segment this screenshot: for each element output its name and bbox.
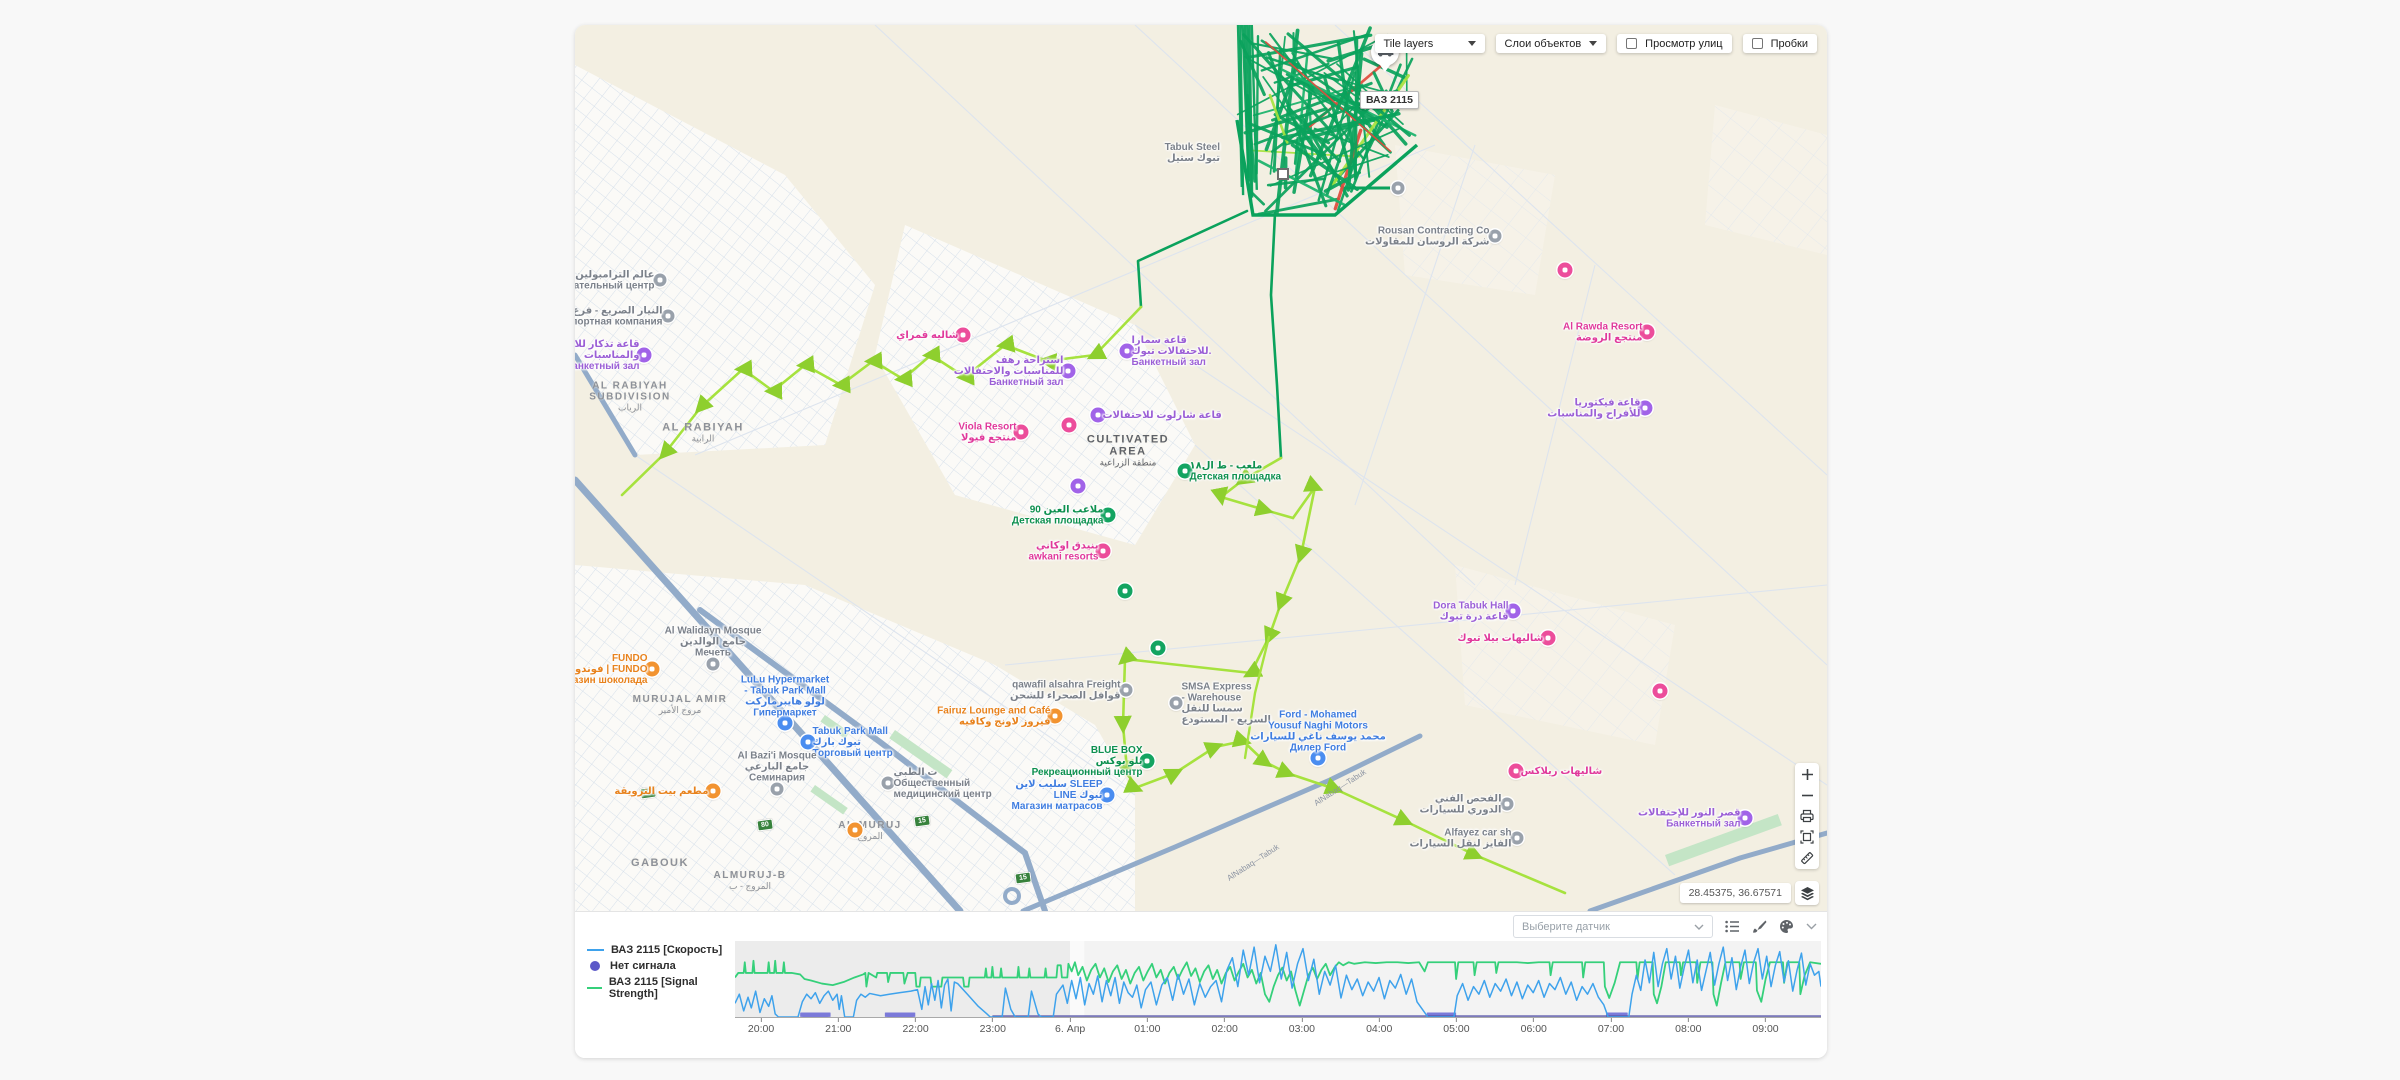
map-coordinates: 28.45375, 36.67571	[1680, 883, 1791, 903]
measure-ruler-button[interactable]	[1800, 851, 1814, 865]
area-label: ALMURUJ-Bالمروج - ب	[714, 870, 787, 892]
map-poi[interactable]	[1062, 418, 1077, 433]
road-shield: 15	[913, 814, 930, 827]
select-area-button[interactable]	[1800, 830, 1814, 844]
axis-tick: 02:00	[1212, 1018, 1238, 1035]
map-poi[interactable]: قاعة تذكار للاوالمناسباتБанкетный зал	[637, 348, 652, 363]
traffic-toggle[interactable]: Пробки	[1743, 34, 1817, 53]
map-poi[interactable]: شاليه قمراي	[956, 328, 971, 343]
poi-label: ملعب - ط ال١٨Детская площадка	[1190, 460, 1282, 482]
print-button[interactable]	[1800, 809, 1814, 823]
poi-label: ملاعب العين 90Детская площадка	[1012, 504, 1104, 526]
bed-icon	[1558, 263, 1573, 278]
legend-line-swatch	[587, 949, 604, 951]
map-poi[interactable]	[1558, 263, 1573, 278]
resort-icon	[1653, 684, 1668, 699]
chevron-down-icon	[1468, 41, 1476, 50]
poi-label: استراحة رهفللمناسبات والاحتفالاتБанкетны…	[954, 355, 1064, 388]
collapse-panel-button[interactable]	[1806, 923, 1817, 930]
street-view-toggle[interactable]: Просмотр улиц	[1617, 34, 1731, 53]
tile-layers-label: Tile layers	[1384, 38, 1434, 50]
poi-label: Tabuk Steelتبوك ستيل	[1165, 142, 1220, 164]
poi-label: FUNDOفوندو | FUNDOМагазин шоколада	[575, 653, 648, 686]
app-window: عالم الترامبولين تлекательный центрالنيا…	[575, 25, 1827, 1058]
poi-label: LuLu Hypermarket- Tabuk Park Mallلولو ها…	[741, 675, 829, 719]
chevron-down-icon	[1589, 41, 1597, 50]
trampoline-icon	[654, 274, 667, 287]
legend-item[interactable]: Нет сигнала	[587, 960, 732, 972]
poi-label: شاليهات ريلاكس	[1521, 766, 1603, 777]
checkbox-icon[interactable]	[1626, 38, 1637, 49]
map-poi[interactable]: Al Rawda Resortمنتجع الروضة	[1640, 325, 1655, 340]
map-poi[interactable]	[1392, 182, 1405, 195]
poi-label: Alfayez car shالفايز لنقل السيارات	[1409, 827, 1511, 849]
zoom-in-button[interactable]	[1800, 767, 1814, 781]
sensor-select[interactable]: Выберите датчик	[1513, 915, 1713, 938]
poi-label: قاعة تذكار للاوالمناسباتБанкетный зал	[575, 339, 640, 372]
road-shield: 80	[756, 818, 773, 831]
poi-label: Ford - MohamedYousuf Naghi Motorsمحمد يو…	[1250, 710, 1386, 754]
map-poi[interactable]: Alfayez car shالفايز لنقل السيارات	[1511, 832, 1524, 845]
layers-button[interactable]	[1795, 881, 1819, 905]
poi-label: Dora Tabuk Hallقاعة درة تبوك	[1433, 600, 1508, 622]
map-poi[interactable]: مطعم بيت الترويقة	[706, 784, 721, 799]
map-poi[interactable]: قاعة سماراللاحتفالات تبوك.Банкетный зал	[1120, 344, 1135, 359]
poi-label: بنيدق اوكانيawkani resorts	[1028, 540, 1098, 562]
poi-label: الفحص الفنيالدوري للسيارات	[1420, 793, 1502, 815]
company-icon	[1489, 230, 1502, 243]
poi-label: شاليه قمراي	[896, 330, 958, 341]
area-label: CULTIVATEDAREAمنطقة الزراعية	[1087, 434, 1169, 469]
map-poi[interactable]: سليب لاين SLEEPLINE تبوكМагазин матрасов	[1100, 788, 1115, 803]
inspection-icon	[1501, 798, 1514, 811]
poi-label: عالم الترامبولين تлекательный центр	[575, 269, 655, 291]
map-poi[interactable]: Al Walidayn Mosqueجامع الوالدينМечеть	[707, 658, 720, 671]
axis-tick: 01:00	[1134, 1018, 1160, 1035]
legend-item[interactable]: ВАЗ 2115 [Скорость]	[587, 944, 732, 956]
mosque-icon	[707, 658, 720, 671]
poi-label: Viola Resortمنتجع فيولا	[958, 421, 1016, 443]
vehicle-label[interactable]: ВАЗ 2115	[1360, 91, 1419, 109]
zoom-out-button[interactable]	[1800, 788, 1814, 802]
axis-tick: 04:00	[1366, 1018, 1392, 1035]
poi-label: قاعة شارلوت للاحتفالات	[1103, 410, 1222, 421]
map-controls: Tile layers Слои объектов Просмотр улиц …	[1375, 34, 1818, 53]
legend-label: ВАЗ 2115 [Signal Strength]	[609, 976, 732, 1000]
telemetry-panel: Выберите датчик ВАЗ 2115 [Скорость]Нет с…	[575, 912, 1827, 1058]
map-poi[interactable]: قاعة شارلوت للاحتفالات	[1091, 408, 1106, 423]
chart-toolbar: Выберите датчик	[1513, 915, 1817, 938]
map-poi[interactable]: qawafil alsahra Freightقوافل الصحراء للش…	[1120, 684, 1133, 697]
map-poi[interactable]: Tabuk Park Mallتبوك باركТорговый центр	[801, 735, 816, 750]
map-poi[interactable]: FUNDOفوندو | FUNDOМагазин шоколада	[645, 662, 660, 677]
map-poi[interactable]	[848, 823, 863, 838]
map-poi[interactable]: النيار الصريع - فرع تبوكнспортная компан…	[662, 310, 675, 323]
car-transport-icon	[1511, 832, 1524, 845]
telemetry-chart[interactable]	[735, 941, 1821, 1018]
playground-icon	[1118, 584, 1133, 599]
playground-icon	[1151, 641, 1166, 656]
map-poi[interactable]: Rousan Contracting Coشركة الروسان للمقاو…	[1489, 230, 1502, 243]
poi-label: Al Rawda Resortمنتجع الروضة	[1563, 321, 1642, 343]
poi-label: Rousan Contracting Coشركة الروسان للمقاو…	[1365, 225, 1489, 247]
checkbox-icon[interactable]	[1752, 38, 1763, 49]
axis-tick: 07:00	[1598, 1018, 1624, 1035]
map-poi[interactable]: SMSA Express- Warehouseسمسا للنقلالسريع …	[1170, 697, 1183, 710]
axis-tick: 23:00	[980, 1018, 1006, 1035]
legend-line-swatch	[587, 987, 602, 989]
camera-icon	[1062, 418, 1077, 433]
chevron-down-icon	[1806, 923, 1817, 930]
chevron-down-icon	[1694, 924, 1704, 930]
map-canvas[interactable]: عالم الترامبولين تлекательный центрالنيا…	[575, 25, 1827, 912]
map-poi[interactable]: قصر النور للإحتفالاتБанкетный зал	[1738, 811, 1753, 826]
map-poi[interactable]: عالم الترامبولين تлекательный центр	[654, 274, 667, 287]
palette-button[interactable]	[1779, 919, 1794, 934]
axis-tick: 03:00	[1289, 1018, 1315, 1035]
banquet-icon	[1071, 479, 1086, 494]
area-label: AL RABIYAHالرابية	[662, 422, 744, 445]
poi-label: قاعة سماراللاحتفالات تبوك.Банкетный зал	[1132, 335, 1212, 368]
poi-label: قصر النور للإحتفالاتБанкетный зал	[1638, 807, 1741, 829]
poi-label: سليب لاين SLEEPLINE تبوكМагазин матрасов	[1011, 779, 1102, 812]
road-shield: 15	[1014, 871, 1031, 884]
legend-list-button[interactable]	[1725, 920, 1740, 933]
chart-x-axis: 20:0021:0022:0023:006. Апр01:0002:0003:0…	[735, 1018, 1821, 1040]
poi-label: Tabuk Park Mallتبوك باركТорговый центр	[813, 726, 893, 759]
sensor-select-placeholder: Выберите датчик	[1522, 921, 1610, 933]
map-poi[interactable]	[1653, 684, 1668, 699]
mosque-icon	[771, 783, 784, 796]
map-poi[interactable]: شاليهات ريلاكس	[1509, 764, 1524, 779]
freight-icon	[1120, 684, 1133, 697]
map-poi[interactable]: Dora Tabuk Hallقاعة درة تبوك	[1506, 604, 1521, 619]
map-poi[interactable]: Al Bazi'i Mosqueجامع البارعيСеминария	[771, 783, 784, 796]
chart-legend: ВАЗ 2115 [Скорость]Нет сигналаВАЗ 2115 […	[587, 944, 732, 1004]
map-poi[interactable]: الفحص الفنيالدوري للسيارات	[1501, 798, 1514, 811]
map-poi[interactable]	[1118, 584, 1133, 599]
poi-label: قاعة فيكتورياللأفراح والمناسبات	[1547, 397, 1640, 419]
layers-icon	[1800, 886, 1815, 901]
axis-tick: 21:00	[825, 1018, 851, 1035]
axis-tick: 22:00	[902, 1018, 928, 1035]
axis-tick: 08:00	[1675, 1018, 1701, 1035]
map-poi[interactable]: LuLu Hypermarket- Tabuk Park Mallلولو ها…	[778, 716, 793, 731]
object-layers-select[interactable]: Слои объектов	[1496, 34, 1607, 53]
map-poi[interactable]: Ford - MohamedYousuf Naghi Motorsمحمد يو…	[1311, 751, 1326, 766]
poi-label: النيار الصريع - فرع تبوكнспортная компан…	[575, 305, 663, 327]
traffic-label: Пробки	[1771, 38, 1808, 50]
poi-label: شاليهات بيلا تبوك	[1457, 633, 1543, 644]
area-label: GABOUK	[631, 857, 689, 869]
axis-tick: 6. Апр	[1055, 1018, 1085, 1035]
target-icon	[1392, 182, 1405, 195]
poi-label: BLUE BOXبلو بوكسРекреационный центр	[1032, 745, 1143, 778]
map-poi[interactable]: ملاعب العين 90Детская площадка	[1101, 508, 1116, 523]
area-label: MURUJAL AMIRمروج الأمير	[633, 694, 728, 716]
truck-icon	[662, 310, 675, 323]
axis-tick: 09:00	[1752, 1018, 1778, 1035]
brush-button[interactable]	[1752, 919, 1767, 934]
axis-tick: 05:00	[1443, 1018, 1469, 1035]
legend-dot-swatch	[590, 961, 600, 971]
map-poi[interactable]	[1151, 641, 1166, 656]
map-poi[interactable]: شاليهات بيلا تبوك	[1541, 631, 1556, 646]
map-poi[interactable]: بنيدق اوكانيawkani resorts	[1096, 544, 1111, 559]
stop-marker	[1277, 168, 1289, 180]
map-poi[interactable]: ت الطبيОбщественныймедицинский центр	[882, 777, 895, 790]
poi-label: qawafil alsahra Freightقوافل الصحراء للش…	[1010, 679, 1121, 701]
restaurant-icon	[848, 823, 863, 838]
object-layers-label: Слои объектов	[1505, 38, 1582, 50]
poi-label: Fairuz Lounge and Caféفيروز لاونج وكافيه	[937, 705, 1050, 727]
street-view-label: Просмотр улиц	[1645, 38, 1722, 50]
area-label: AL RABIYAHSUBDIVISIONالرياب	[589, 381, 671, 414]
map-poi[interactable]: BLUE BOXبلو بوكسРекреационный центр	[1140, 754, 1155, 769]
poi-label: مطعم بيت الترويقة	[614, 786, 708, 797]
map-tool-stack	[1795, 763, 1819, 869]
poi-label: Al Walidayn Mosqueجامع الوالدينМечеть	[665, 626, 762, 659]
map-poi[interactable]	[1071, 479, 1086, 494]
poi-label: ت الطبيОбщественныймедицинский центр	[894, 767, 992, 800]
axis-tick: 06:00	[1521, 1018, 1547, 1035]
tile-layers-select[interactable]: Tile layers	[1375, 34, 1485, 53]
coordinates-value: 28.45375, 36.67571	[1689, 887, 1782, 899]
map-poi[interactable]: Fairuz Lounge and Caféفيروز لاونج وكافيه	[1048, 709, 1063, 724]
map-poi[interactable]: قاعة فيكتورياللأفراح والمناسبات	[1638, 401, 1653, 416]
legend-label: ВАЗ 2115 [Скорость]	[611, 944, 722, 956]
map-poi[interactable]: ملعب - ط ال١٨Детская площадка	[1178, 464, 1193, 479]
axis-tick: 20:00	[748, 1018, 774, 1035]
map-poi[interactable]: استراحة رهفللمناسبات والاحتفالاتБанкетны…	[1061, 364, 1076, 379]
map-poi[interactable]: Viola Resortمنتجع فيولا	[1014, 425, 1029, 440]
legend-label: Нет сигнала	[610, 960, 676, 972]
legend-item[interactable]: ВАЗ 2115 [Signal Strength]	[587, 976, 732, 1000]
poi-label: Al Bazi'i Mosqueجامع البارعيСеминария	[737, 751, 816, 784]
